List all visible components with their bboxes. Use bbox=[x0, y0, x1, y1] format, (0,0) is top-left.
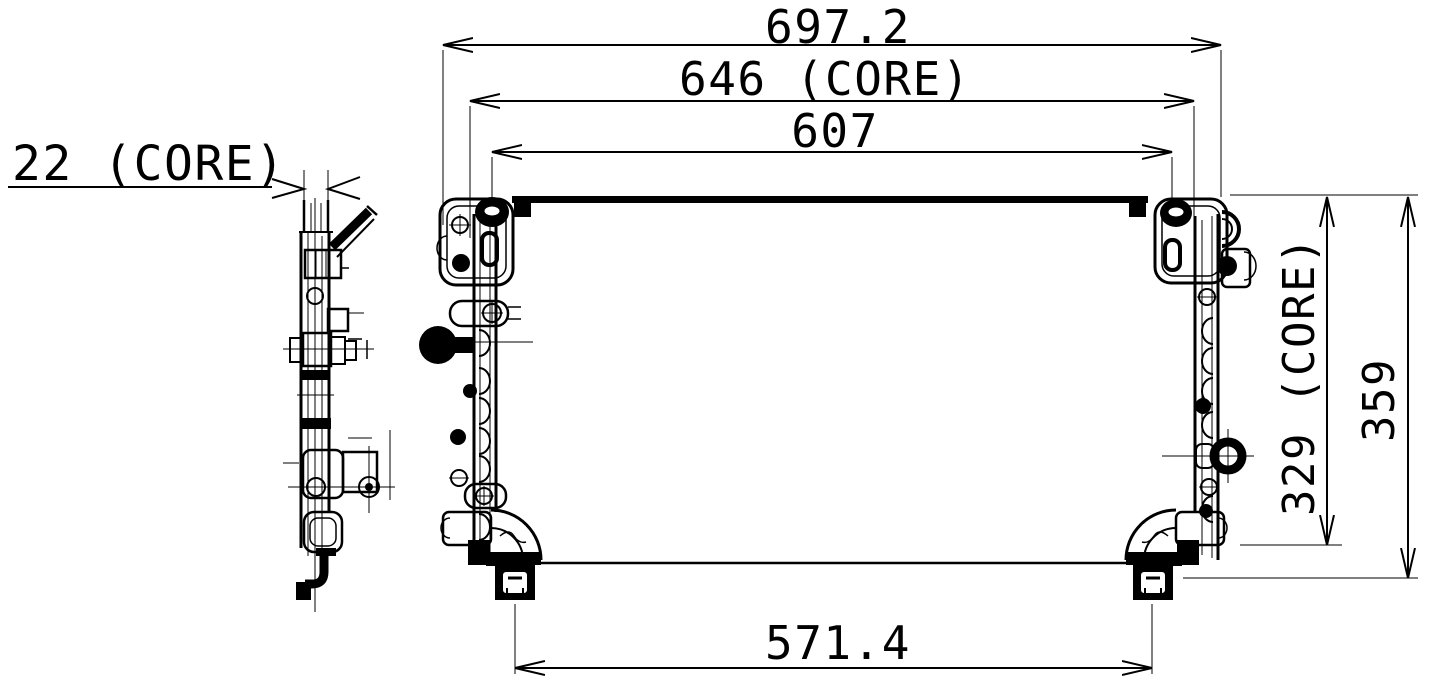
right-tank bbox=[1126, 199, 1256, 600]
dim-label-side-depth: 22 (CORE) bbox=[12, 140, 286, 188]
core bbox=[470, 196, 1184, 563]
technical-drawing-canvas: 697.2 646 (CORE) 607 571.4 22 (CORE) 329… bbox=[0, 0, 1440, 695]
side-view bbox=[283, 198, 395, 612]
dim-label-mount-span: 571.4 bbox=[765, 620, 911, 666]
dim-label-core-width: 646 (CORE) bbox=[679, 56, 971, 102]
front-view bbox=[419, 196, 1256, 600]
dim-label-overall-height: 359 bbox=[1358, 358, 1402, 442]
dim-label-core-height: 329 (CORE) bbox=[1278, 236, 1322, 516]
dim-label-overall-width: 697.2 bbox=[765, 4, 911, 50]
left-tank bbox=[419, 197, 541, 600]
dim-label-tank-width: 607 bbox=[791, 108, 879, 154]
